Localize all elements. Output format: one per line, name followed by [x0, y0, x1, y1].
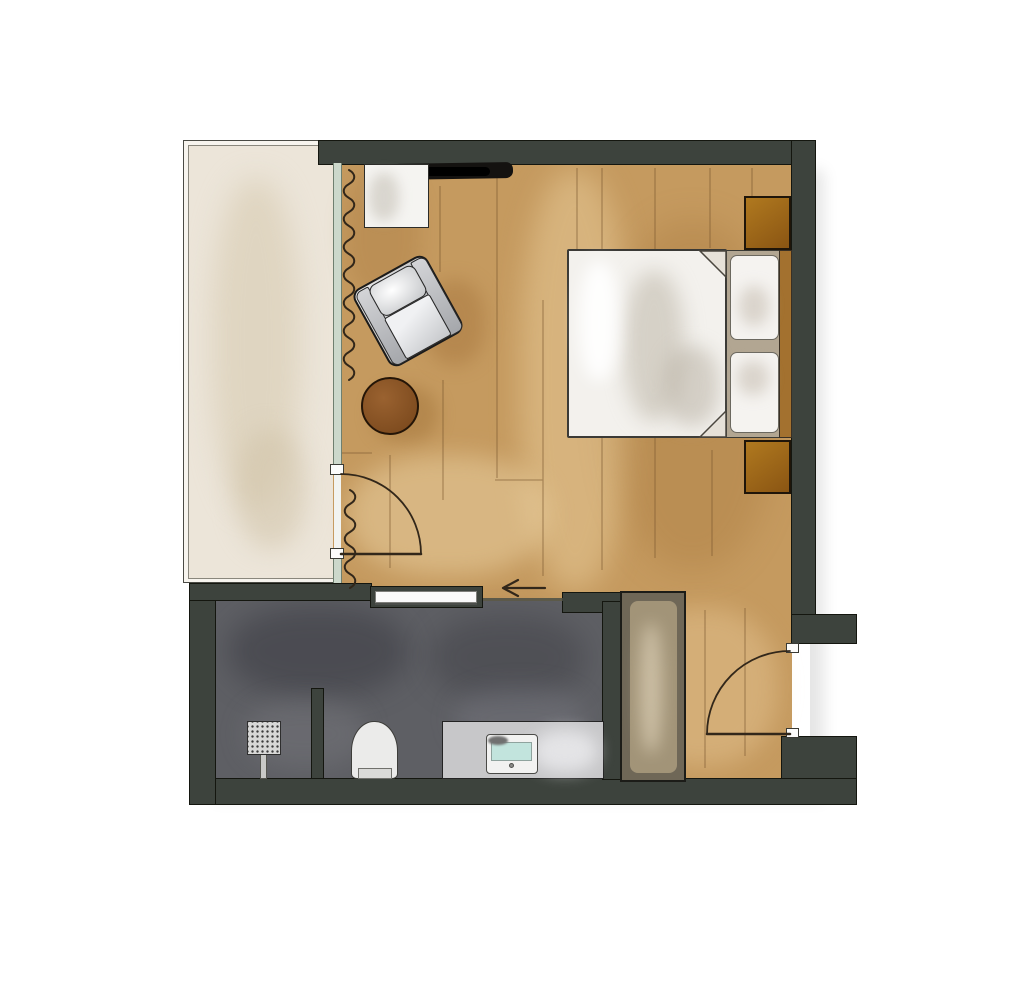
curtain [344, 170, 355, 380]
curtain [345, 490, 356, 588]
floor-plan-canvas [0, 0, 1024, 1006]
balcony-door-swing [341, 474, 421, 554]
entry-door-swing [707, 651, 790, 734]
duvet-fold [700, 411, 726, 437]
duvet-fold [700, 251, 726, 277]
linework [0, 0, 1024, 1006]
entry-arrow [503, 580, 545, 596]
